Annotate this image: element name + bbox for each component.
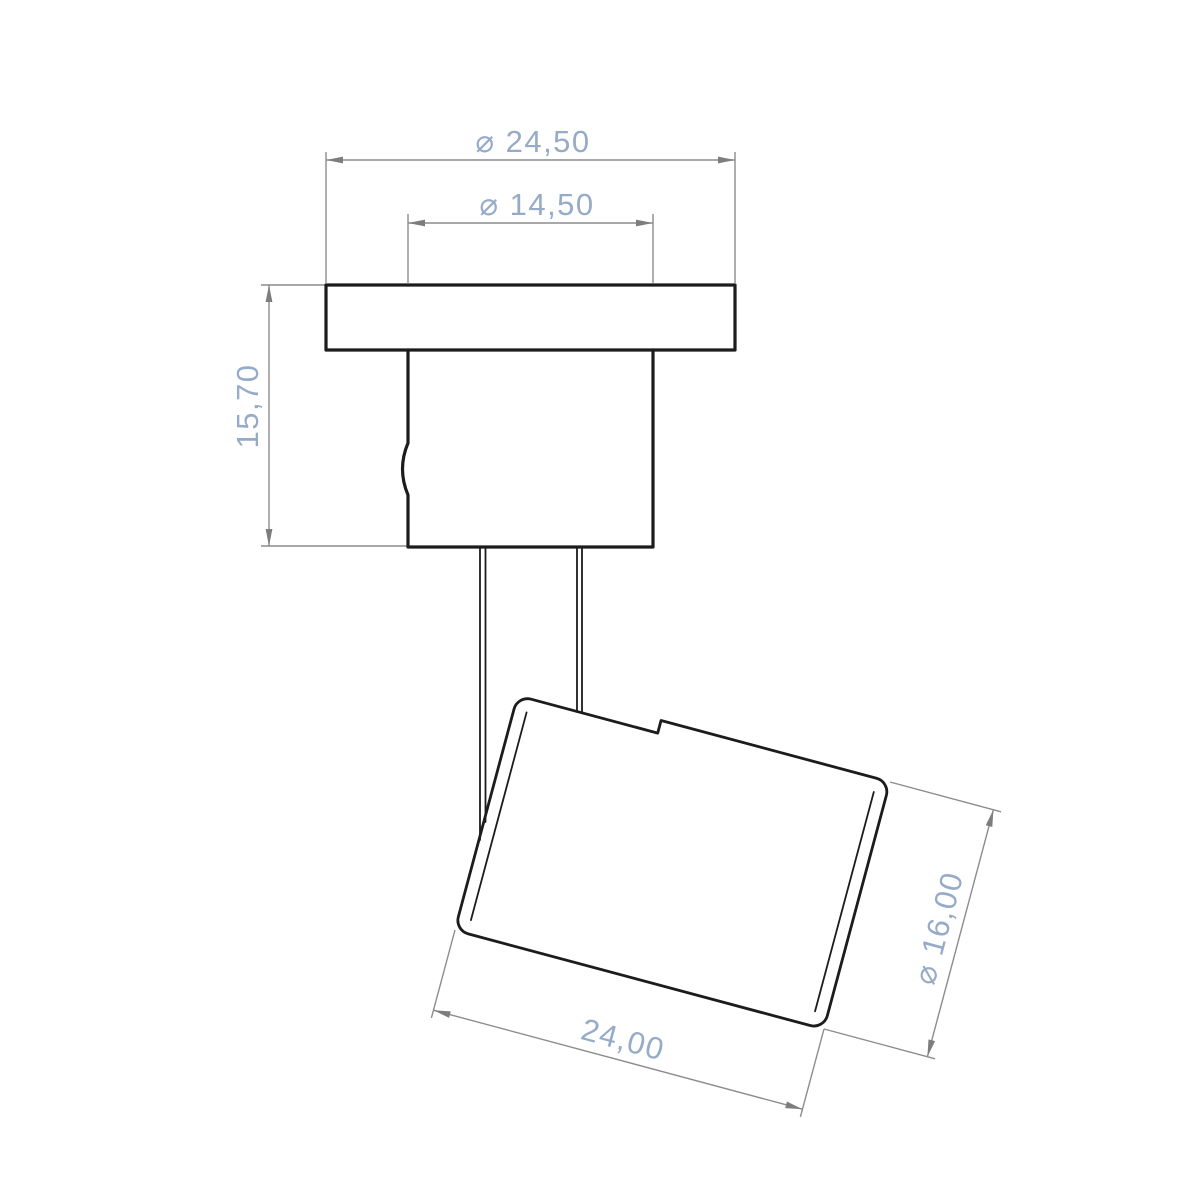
arrowhead: [718, 157, 735, 164]
arrowhead: [266, 529, 273, 546]
dimension-label: 15,70: [230, 363, 265, 448]
arrowhead: [924, 1039, 935, 1057]
arrowhead: [785, 1102, 803, 1113]
part-views-layer: [326, 285, 890, 1029]
barrel-right-tangent-line: [815, 792, 874, 1011]
arrowhead: [266, 285, 273, 302]
extension-line: [890, 782, 1001, 812]
barrel-view: [455, 683, 890, 1029]
dimension-label: ⌀ 16,00: [907, 868, 971, 988]
dim-barrel-length: 24,00: [431, 930, 824, 1117]
dimensions-layer: ⌀ 24,50 ⌀ 14,50 15,70: [230, 124, 1001, 1117]
drawing-page: ⌀ 24,50 ⌀ 14,50 15,70: [0, 0, 1200, 1200]
dim-boss-diameter: ⌀ 14,50: [408, 187, 653, 283]
extension-line: [824, 1029, 935, 1059]
flange-outline: [326, 285, 735, 350]
dimension-label: ⌀ 24,50: [475, 124, 590, 159]
dimension-label: 24,00: [578, 1012, 669, 1068]
dim-barrel-diameter: ⌀ 16,00: [824, 782, 1001, 1059]
dimension-label: ⌀ 14,50: [479, 187, 594, 222]
arrowhead: [986, 809, 997, 827]
arrowhead: [636, 220, 653, 227]
arrowhead: [408, 220, 425, 227]
boss-outline: [403, 350, 654, 547]
drawing-canvas: ⌀ 24,50 ⌀ 14,50 15,70: [0, 0, 1200, 1200]
extension-line: [431, 930, 455, 1018]
arrowhead: [326, 157, 343, 164]
dim-boss-height: 15,70: [230, 285, 407, 546]
stem-lines: [480, 547, 582, 840]
arrowhead: [433, 1007, 451, 1018]
extension-line: [800, 1029, 824, 1117]
